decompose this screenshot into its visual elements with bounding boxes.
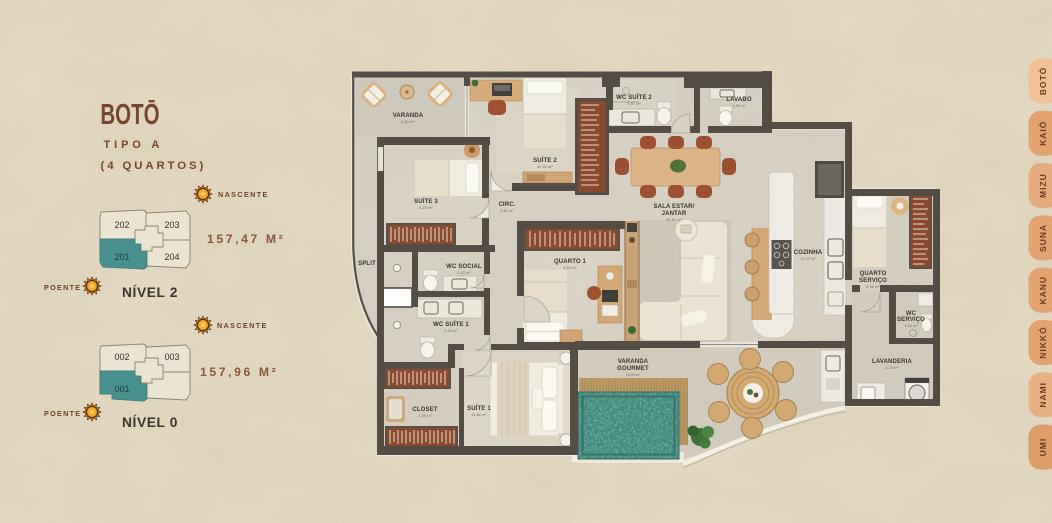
svg-text:SUNA: SUNA bbox=[1038, 224, 1048, 252]
svg-text:003: 003 bbox=[164, 352, 179, 362]
svg-text:QUARTO 1: QUARTO 1 bbox=[554, 259, 587, 265]
svg-text:203: 203 bbox=[164, 220, 179, 230]
svg-text:KANU: KANU bbox=[1038, 276, 1048, 305]
svg-text:SUÍTE 3: SUÍTE 3 bbox=[414, 197, 438, 205]
svg-text:3,47 m²: 3,47 m² bbox=[627, 102, 641, 106]
svg-text:GOURMET: GOURMET bbox=[617, 366, 649, 372]
svg-text:TIPO A: TIPO A bbox=[104, 139, 164, 151]
svg-text:13,60 m²: 13,60 m² bbox=[471, 413, 487, 417]
svg-text:SERVIÇO: SERVIÇO bbox=[859, 278, 887, 284]
svg-text:11,32 m²: 11,32 m² bbox=[800, 257, 816, 261]
svg-text:NASCENTE: NASCENTE bbox=[218, 190, 269, 199]
svg-text:4,39 m²: 4,39 m² bbox=[418, 414, 432, 418]
svg-text:LAVABO: LAVABO bbox=[726, 97, 752, 103]
svg-text:2,32 m²: 2,32 m² bbox=[457, 271, 471, 275]
svg-text:VARANDA: VARANDA bbox=[393, 113, 424, 119]
svg-text:LAVANDERIA: LAVANDERIA bbox=[872, 359, 912, 365]
svg-text:UMI: UMI bbox=[1038, 438, 1048, 457]
svg-text:NAMI: NAMI bbox=[1038, 382, 1048, 408]
svg-text:SPLIT: SPLIT bbox=[358, 261, 376, 267]
svg-text:WC SUÍTE 1: WC SUÍTE 1 bbox=[433, 320, 469, 328]
svg-text:10,01 m²: 10,01 m² bbox=[537, 165, 553, 169]
svg-text:NÍVEL 0: NÍVEL 0 bbox=[122, 414, 178, 430]
svg-text:JANTAR: JANTAR bbox=[662, 211, 687, 217]
svg-text:19,00m²: 19,00m² bbox=[626, 373, 641, 377]
svg-text:1,94 m²: 1,94 m² bbox=[904, 324, 918, 328]
svg-text:POENTE: POENTE bbox=[44, 409, 81, 418]
svg-text:WC SOCIAL: WC SOCIAL bbox=[446, 264, 482, 270]
svg-text:3,84 m²: 3,84 m² bbox=[500, 209, 514, 213]
svg-text:8,26 m²: 8,26 m² bbox=[419, 206, 433, 210]
svg-text:SUÍTE 2: SUÍTE 2 bbox=[533, 156, 557, 164]
svg-text:MIZU: MIZU bbox=[1038, 173, 1048, 198]
svg-text:204: 204 bbox=[164, 252, 179, 262]
svg-text:COZINHA: COZINHA bbox=[794, 250, 823, 256]
svg-text:001: 001 bbox=[114, 384, 129, 394]
svg-text:26,81 m²: 26,81 m² bbox=[666, 218, 682, 222]
svg-text:CLOSET: CLOSET bbox=[412, 407, 437, 413]
svg-text:SUÍTE 1: SUÍTE 1 bbox=[467, 404, 491, 412]
svg-text:WC SUÍTE 2: WC SUÍTE 2 bbox=[616, 93, 652, 101]
svg-text:CIRC.: CIRC. bbox=[498, 202, 515, 208]
svg-text:SALA ESTAR/: SALA ESTAR/ bbox=[654, 204, 695, 210]
svg-text:202: 202 bbox=[114, 220, 129, 230]
svg-text:VARANDA: VARANDA bbox=[618, 359, 649, 365]
svg-text:SERVIÇO: SERVIÇO bbox=[897, 317, 925, 323]
svg-text:(4 QUARTOS): (4 QUARTOS) bbox=[101, 160, 207, 172]
svg-text:QUARTO: QUARTO bbox=[860, 271, 887, 277]
svg-text:NÍVEL 2: NÍVEL 2 bbox=[122, 284, 178, 300]
svg-text:002: 002 bbox=[114, 352, 129, 362]
svg-text:4,78 m²: 4,78 m² bbox=[885, 366, 899, 370]
svg-text:POENTE: POENTE bbox=[44, 283, 81, 292]
svg-text:NASCENTE: NASCENTE bbox=[217, 321, 268, 330]
svg-text:BOTŌ: BOTŌ bbox=[100, 100, 159, 131]
svg-text:157,96 M²: 157,96 M² bbox=[200, 365, 278, 379]
svg-text:6,48 m²: 6,48 m² bbox=[866, 285, 880, 289]
svg-text:KAIÒ: KAIÒ bbox=[1037, 121, 1048, 146]
svg-text:4,39 m²: 4,39 m² bbox=[444, 329, 458, 333]
svg-text:1,95 m²: 1,95 m² bbox=[732, 104, 746, 108]
svg-text:BOTÓ: BOTÓ bbox=[1037, 67, 1048, 96]
svg-text:201: 201 bbox=[114, 252, 129, 262]
svg-text:157,47 M²: 157,47 M² bbox=[207, 232, 285, 246]
svg-text:3,84 m²: 3,84 m² bbox=[401, 120, 415, 124]
svg-text:9,83 m²: 9,83 m² bbox=[563, 266, 577, 270]
svg-text:NIKKÓ: NIKKÓ bbox=[1037, 326, 1048, 358]
